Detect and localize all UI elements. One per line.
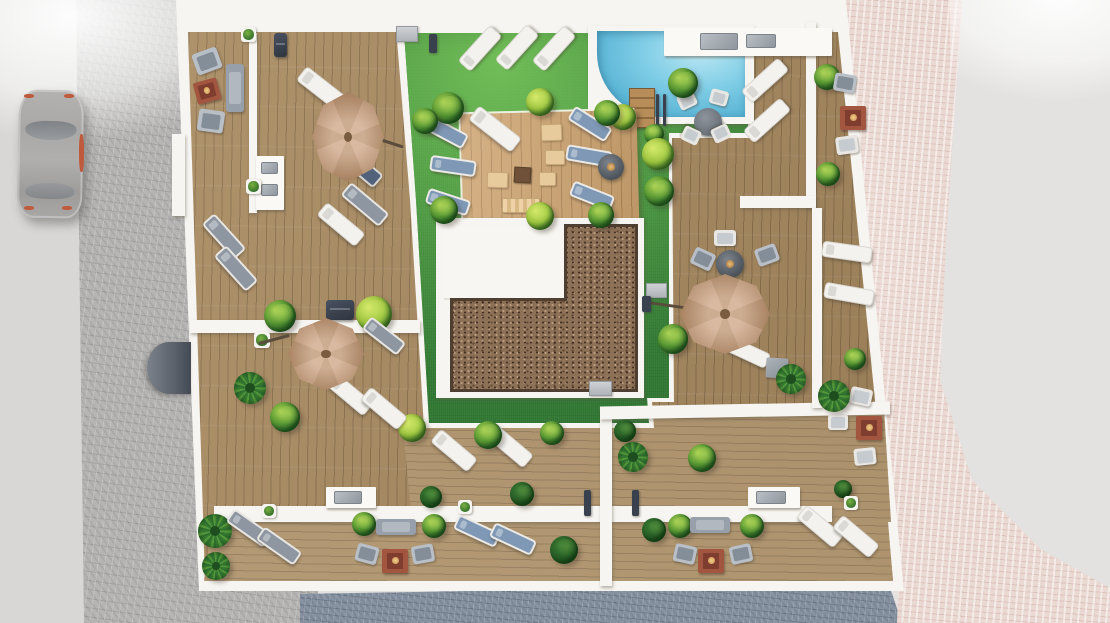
platform-seat-2 — [545, 150, 565, 165]
plant-rightcol-mid — [816, 162, 840, 186]
core-roof-white — [444, 226, 566, 300]
plant-righttop — [668, 68, 698, 98]
plant-lowerright-ball — [614, 420, 636, 442]
shower-post — [429, 34, 437, 53]
pot-bottom-1 — [262, 504, 276, 518]
plant-midleft-1 — [474, 421, 502, 449]
chair-rightlow-2 — [828, 414, 848, 430]
platform-seat-4 — [539, 172, 556, 186]
plant-lowerleft-3 — [270, 402, 300, 432]
plant-rightmid-3 — [844, 348, 866, 370]
sofa-topleft — [226, 64, 244, 112]
plant-bottom-3 — [668, 514, 692, 538]
umbrella-right — [680, 274, 770, 354]
plant-midleft-2 — [540, 421, 564, 445]
planter-ledge — [172, 134, 185, 216]
pot-wall-2 — [246, 179, 261, 194]
wall-divider-rightmid — [812, 208, 822, 408]
plant-platform-3 — [594, 100, 620, 126]
plant-lawn-right-1 — [642, 138, 674, 170]
car-taillight-right — [62, 206, 72, 210]
plant-rightmid-1 — [658, 324, 688, 354]
plant-bottom-palm-2 — [202, 552, 230, 580]
heater-post-1 — [584, 490, 591, 516]
utility-box-lawn-corner — [396, 26, 418, 42]
grill-topleft — [274, 33, 287, 57]
pot-wall-1 — [241, 27, 256, 42]
platform-seat-1 — [541, 124, 563, 142]
sink-left-1 — [261, 162, 278, 174]
sofa-bottom-left — [376, 519, 416, 535]
plant-lowerright-palm — [618, 442, 648, 472]
plant-rightlow-palm — [818, 380, 850, 412]
plant-platform-2 — [526, 88, 554, 116]
chair-rightlow-3 — [853, 447, 877, 466]
chair-rightcol-1 — [833, 72, 858, 94]
chair-rightmid-1 — [714, 230, 736, 246]
plant-midleft-ball-2 — [510, 482, 534, 506]
awning — [147, 342, 191, 394]
plant-platform-6 — [588, 202, 614, 228]
platform-coffee-table — [514, 167, 532, 184]
pool-ladder-rail-2 — [663, 94, 666, 126]
plant-lowerleft-palm — [234, 372, 266, 404]
plant-bottom-ball-2 — [642, 518, 666, 542]
chair-bottom-2 — [411, 543, 436, 565]
cooktop-bottomleft — [334, 491, 362, 504]
plant-lowerleft-1 — [264, 300, 296, 332]
plant-platform-7 — [412, 108, 438, 134]
wall-divider-righttop-h — [740, 196, 816, 208]
wall-bottom-long — [214, 506, 832, 522]
plant-platform-5 — [526, 202, 554, 230]
sink-topright — [746, 34, 776, 48]
car-side-trim — [79, 134, 84, 172]
plant-lowerright-bush — [688, 444, 716, 472]
plant-bottom-1 — [352, 512, 376, 536]
plant-bottom-2 — [422, 514, 446, 538]
firetable-rightlow — [856, 416, 882, 440]
haze-top-right — [950, 0, 1110, 100]
plant-bottom-ball-1 — [550, 536, 578, 564]
umbrella-base-right — [642, 296, 651, 312]
heater-post-2 — [632, 490, 639, 516]
plant-bottom-4 — [740, 514, 764, 538]
parked-car — [17, 89, 84, 218]
grill-lowerleft — [326, 300, 354, 320]
pot-bottom-2 — [458, 500, 472, 514]
plant-lawn-right-2 — [644, 176, 674, 206]
pot-bottom-3 — [844, 496, 858, 510]
plant-platform-4 — [430, 196, 458, 224]
cooktop-bottomright — [756, 491, 786, 504]
car-taillight-left — [24, 206, 34, 210]
chair-rightcol-2 — [835, 135, 859, 156]
firetable-bottom-left — [382, 549, 408, 573]
platform-seat-3 — [487, 172, 509, 189]
plant-midleft-ball-1 — [420, 486, 442, 508]
pool-ladder-rail-1 — [656, 94, 659, 126]
cooktop-topright — [700, 33, 738, 50]
scene — [0, 0, 1110, 623]
firetable-bottom-right — [698, 549, 724, 573]
firetable-rightcol-top — [840, 106, 866, 130]
sofa-bottom-right — [690, 517, 730, 533]
rooftop-unit-2 — [589, 381, 612, 396]
car-headlight-left — [24, 94, 34, 98]
firepit-rightmid — [716, 250, 744, 278]
car-headlight-right — [64, 94, 74, 98]
sink-left-2 — [261, 184, 278, 196]
firepit-lawn — [598, 154, 624, 180]
wall-divider-center — [600, 414, 612, 586]
plant-rightmid-2 — [776, 364, 806, 394]
armchair-topleft-2 — [197, 108, 226, 133]
